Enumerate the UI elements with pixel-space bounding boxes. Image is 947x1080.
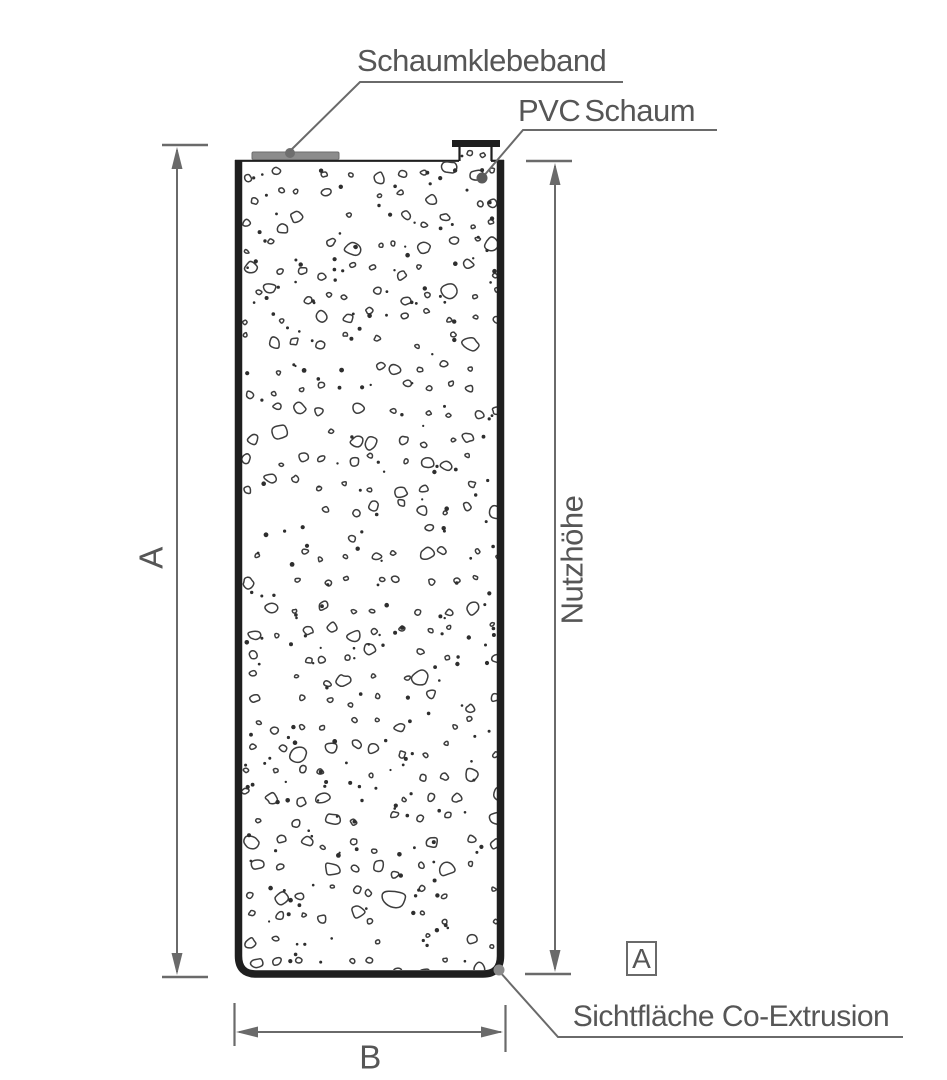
label-schaumklebeband: Schaumklebeband xyxy=(357,45,597,76)
diagram-canvas: Schaumklebeband PVC Schaum Nutzhöhe A B … xyxy=(0,0,947,1080)
label-dimension-b: B xyxy=(359,1041,381,1074)
arrow-down-icon xyxy=(550,950,561,972)
label-pvc-schaum: PVC Schaum xyxy=(518,95,678,126)
arrow-right-icon xyxy=(481,1027,503,1038)
adhesive-tape xyxy=(252,152,339,160)
pvc-notch-cap xyxy=(452,140,500,147)
leader-pvc-schaum xyxy=(482,130,717,178)
sichtflaeche-leader-dot xyxy=(494,965,505,976)
foam-texture xyxy=(241,151,510,978)
arrow-up-icon xyxy=(550,163,561,185)
section-marker-letter: A xyxy=(632,943,651,975)
label-nutzhoehe: Nutzhöhe xyxy=(557,496,588,625)
profile-drawing xyxy=(0,0,947,1080)
profile-outline xyxy=(239,160,501,974)
arrow-down-icon xyxy=(172,953,183,975)
tape-leader-dot xyxy=(285,148,295,158)
section-marker-box: A xyxy=(626,941,657,976)
arrow-up-icon xyxy=(172,147,183,169)
label-dimension-a: A xyxy=(135,547,168,569)
label-sichtflaeche: Sichtfläche Co-Extrusion xyxy=(556,1002,906,1032)
arrow-left-icon xyxy=(236,1027,258,1038)
pvc-leader-dot xyxy=(477,173,488,184)
